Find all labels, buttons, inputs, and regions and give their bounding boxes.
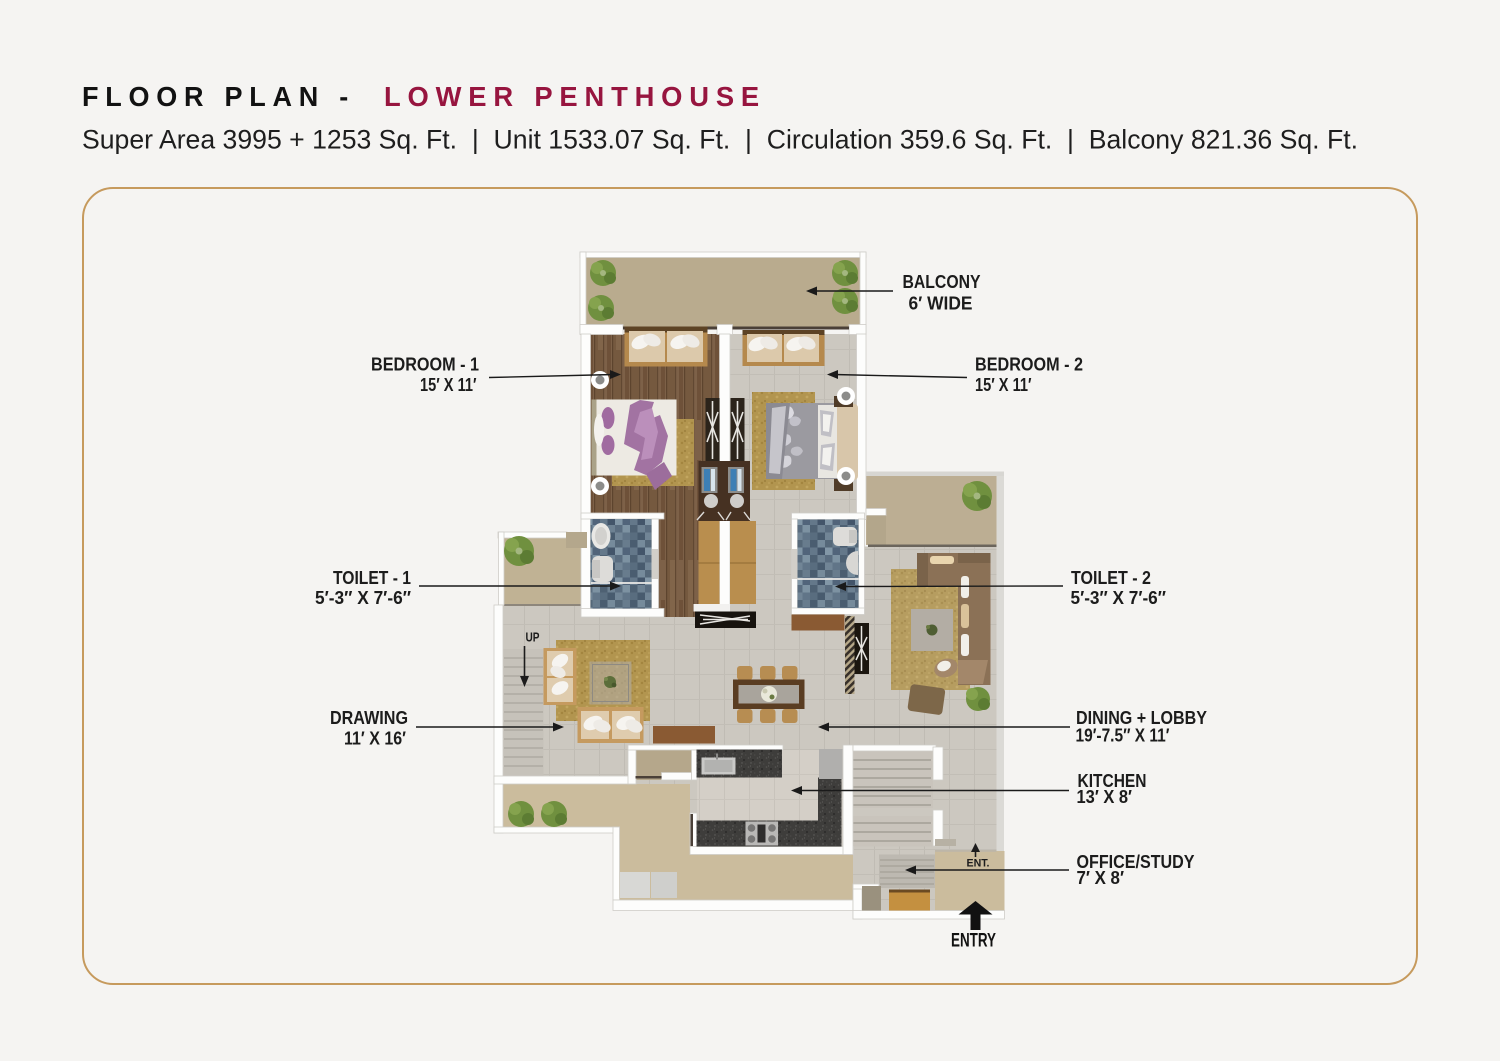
svg-text:11′ X 16′: 11′ X 16′ bbox=[344, 729, 406, 749]
svg-text:15′ X 11′: 15′ X 11′ bbox=[975, 375, 1032, 395]
svg-text:6′ WIDE: 6′ WIDE bbox=[909, 294, 973, 314]
svg-text:7′ X 8′: 7′ X 8′ bbox=[1077, 868, 1125, 888]
svg-text:5′-3″ X 7′-6″: 5′-3″ X 7′-6″ bbox=[315, 588, 411, 608]
svg-text:13′ X 8′: 13′ X 8′ bbox=[1077, 787, 1133, 807]
svg-text:15′ X 11′: 15′ X 11′ bbox=[420, 375, 477, 395]
svg-text:BEDROOM - 1: BEDROOM - 1 bbox=[371, 355, 479, 375]
svg-text:LOWER PENTHOUSE: LOWER PENTHOUSE bbox=[384, 81, 766, 112]
svg-text:19′-7.5″ X 11′: 19′-7.5″ X 11′ bbox=[1076, 726, 1170, 746]
svg-text:5′-3″ X 7′-6″: 5′-3″ X 7′-6″ bbox=[1071, 588, 1167, 608]
svg-text:ENT.: ENT. bbox=[967, 858, 990, 870]
svg-text:FLOOR PLAN -: FLOOR PLAN - bbox=[82, 81, 355, 112]
svg-text:TOILET - 1: TOILET - 1 bbox=[333, 568, 411, 588]
svg-text:TOILET - 2: TOILET - 2 bbox=[1071, 568, 1151, 588]
svg-text:Super Area 3995 + 1253 Sq. Ft.: Super Area 3995 + 1253 Sq. Ft. | Unit 15… bbox=[82, 125, 1358, 155]
svg-text:BALCONY: BALCONY bbox=[903, 272, 981, 292]
svg-text:UP: UP bbox=[526, 631, 540, 645]
svg-text:BEDROOM - 2: BEDROOM - 2 bbox=[975, 355, 1083, 375]
svg-text:ENTRY: ENTRY bbox=[951, 931, 996, 952]
svg-text:DRAWING: DRAWING bbox=[330, 708, 408, 728]
